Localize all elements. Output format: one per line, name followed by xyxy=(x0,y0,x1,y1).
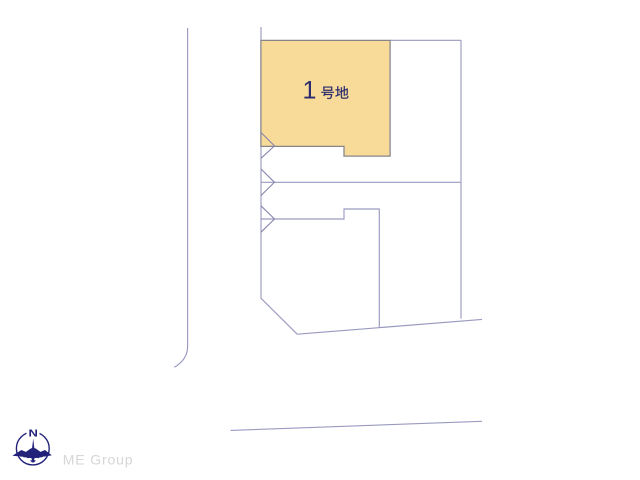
svg-text:ME Group: ME Group xyxy=(63,451,134,467)
svg-text:1: 1 xyxy=(303,77,317,105)
svg-text:N: N xyxy=(29,428,38,440)
